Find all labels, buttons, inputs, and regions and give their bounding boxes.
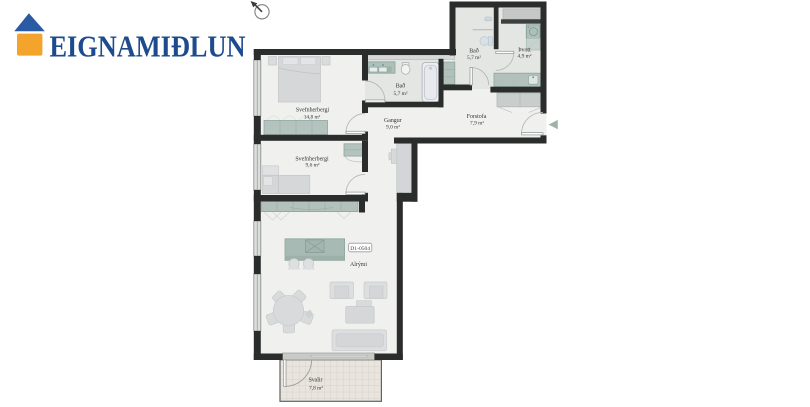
svg-text:Alrými: Alrými [350,262,367,268]
svg-text:4,9 m²: 4,9 m² [518,54,532,60]
svg-text:Bað: Bað [396,83,406,90]
svg-text:Forstofa: Forstofa [467,113,487,120]
svg-text:5,7 m²: 5,7 m² [394,91,408,97]
svg-text:Svefnherbergi: Svefnherbergi [295,155,329,162]
svg-text:7,9 m²: 7,9 m² [470,120,484,126]
svg-text:Svalir: Svalir [308,377,322,383]
svg-text:Gangur: Gangur [384,118,402,124]
svg-text:Svefnherbergi: Svefnherbergi [296,106,330,113]
svg-text:D1-0504: D1-0504 [350,246,370,252]
svg-text:14,8 m²: 14,8 m² [304,114,321,120]
svg-text:EIGNAMIÐLUN: EIGNAMIÐLUN [50,29,246,63]
svg-text:9,0 m²: 9,0 m² [386,125,400,131]
svg-text:5,7 m²: 5,7 m² [467,55,481,61]
svg-text:7,8 m²: 7,8 m² [309,385,323,391]
svg-text:9,6 m²: 9,6 m² [306,163,320,169]
svg-text:Bað: Bað [469,48,479,55]
